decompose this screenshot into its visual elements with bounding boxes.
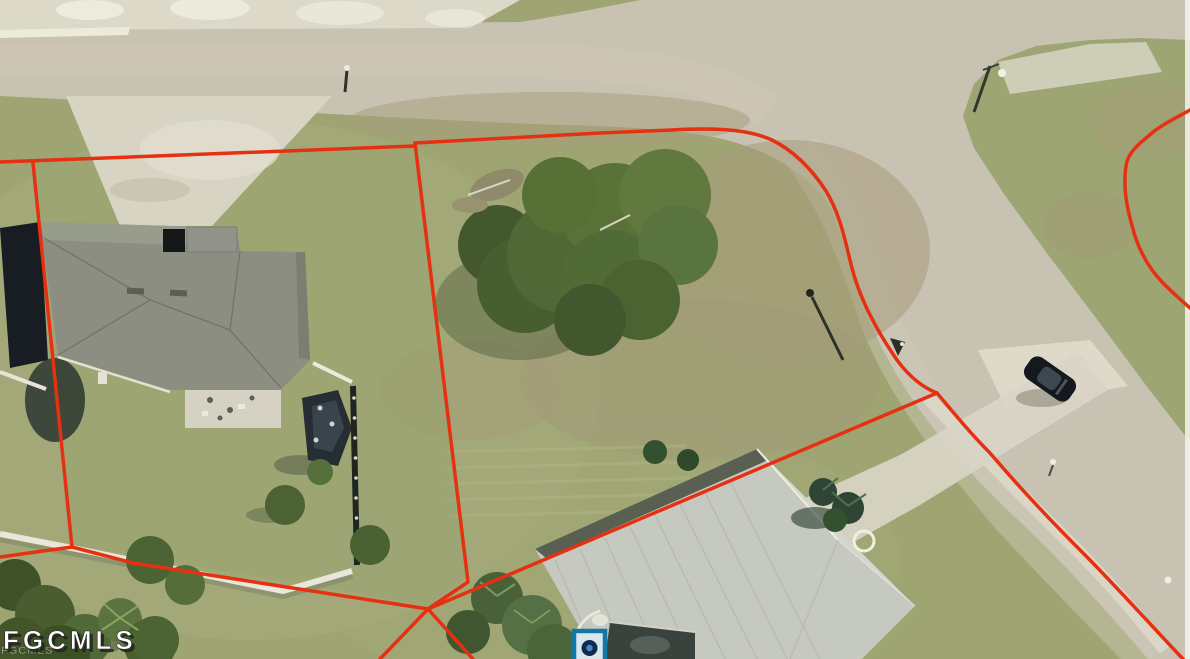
- watermark: FGCMLS FGCMLS FGCMLS: [1, 625, 140, 658]
- dead-branches: [452, 197, 488, 213]
- aerial-parcel-map: FGCMLS FGCMLS FGCMLS: [0, 0, 1190, 659]
- watermark-text: FGCMLS: [3, 625, 137, 655]
- ac-unit: [98, 372, 107, 384]
- photo-edge-sliver: [1185, 0, 1190, 659]
- satellite-dish: [592, 614, 608, 626]
- boat-glint: [318, 406, 323, 411]
- dirt-patch: [350, 92, 750, 148]
- driveway-highlight: [140, 120, 280, 180]
- dirt-blotch: [296, 1, 384, 25]
- pole-cap: [998, 69, 1006, 77]
- roof-vent: [170, 290, 187, 297]
- lanai-porch: [185, 390, 281, 428]
- birdseye-camera-marker-icon[interactable]: [574, 631, 605, 659]
- dirt-blotch: [425, 9, 485, 27]
- driveway-stain: [110, 178, 190, 202]
- camera-marker-lens-inner: [586, 645, 592, 651]
- aerial-photo-canvas: FGCMLS FGCMLS FGCMLS: [0, 0, 1190, 659]
- roof-vent: [127, 288, 144, 295]
- boat-glint: [330, 422, 335, 427]
- boat-glint: [314, 438, 319, 443]
- roof-raised-section: [187, 227, 237, 252]
- chimney: [163, 229, 185, 252]
- pool-water: [630, 636, 670, 654]
- dirt-blotch: [56, 0, 124, 20]
- dirt-patch: [1042, 191, 1138, 259]
